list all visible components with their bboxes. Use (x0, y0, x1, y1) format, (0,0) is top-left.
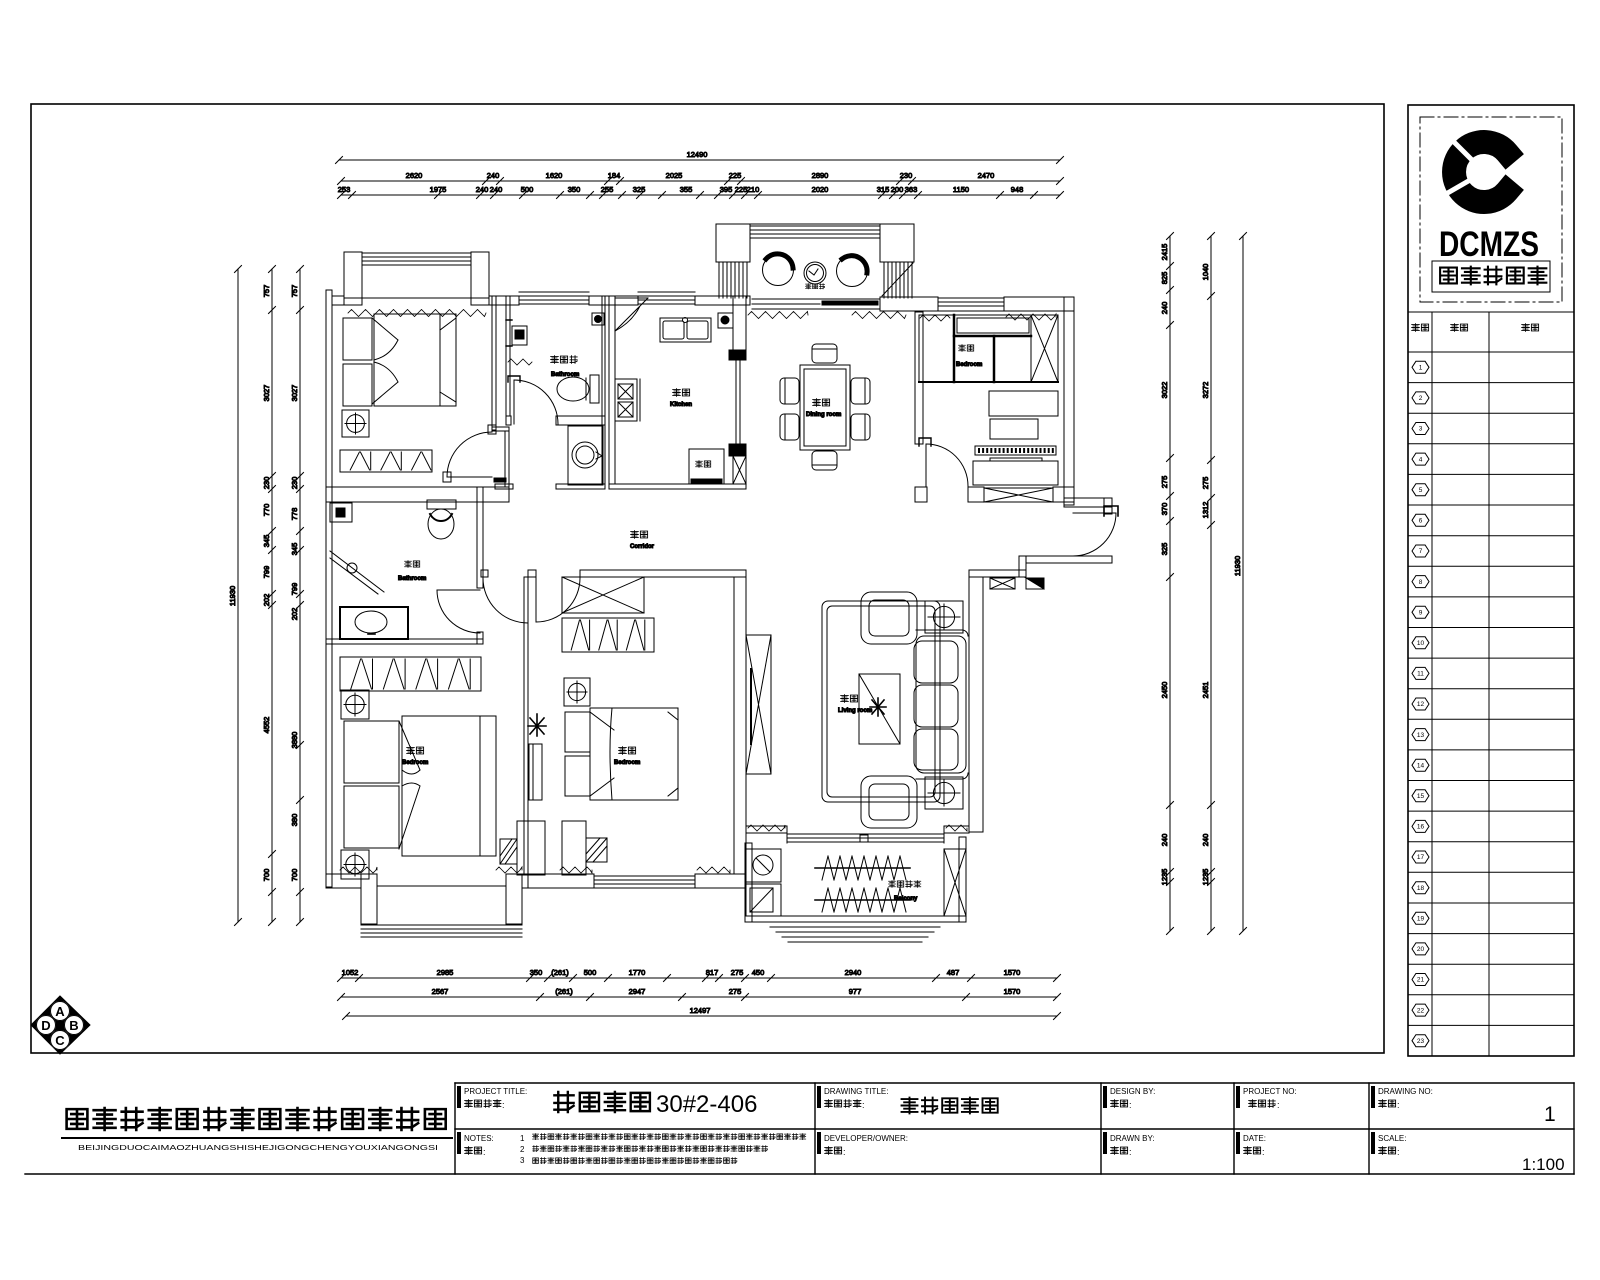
svg-text:6: 6 (1419, 518, 1423, 525)
svg-text:NOTES:: NOTES: (464, 1134, 494, 1143)
svg-text:Balcony: Balcony (894, 896, 918, 902)
svg-text:315: 315 (877, 185, 890, 194)
svg-text:12490: 12490 (687, 150, 708, 159)
svg-text:8: 8 (1419, 579, 1423, 586)
svg-text:3027: 3027 (262, 385, 271, 402)
svg-text:1570: 1570 (1004, 968, 1021, 977)
svg-text:2567: 2567 (432, 987, 449, 996)
svg-text:SCALE:: SCALE: (1378, 1134, 1406, 1143)
svg-text:500: 500 (584, 968, 597, 977)
svg-text:255: 255 (601, 185, 614, 194)
svg-text:240: 240 (476, 185, 489, 194)
svg-text:355: 355 (680, 185, 693, 194)
svg-text:DATE:: DATE: (1243, 1134, 1266, 1143)
svg-text:DRAWING TITLE:: DRAWING TITLE: (824, 1087, 888, 1096)
svg-text:240: 240 (1160, 834, 1169, 847)
svg-text:1052: 1052 (342, 968, 359, 977)
svg-text:2: 2 (1419, 395, 1423, 402)
svg-text:16: 16 (1417, 824, 1425, 831)
svg-text:345: 345 (290, 543, 299, 556)
svg-text:14: 14 (1417, 762, 1425, 769)
svg-text:17: 17 (1417, 854, 1425, 861)
svg-text:817: 817 (706, 968, 719, 977)
svg-text:225: 225 (735, 185, 748, 194)
svg-text::: : (1262, 1147, 1265, 1157)
svg-text:Bedroom: Bedroom (956, 362, 982, 368)
svg-text:977: 977 (849, 987, 862, 996)
svg-text:3272: 3272 (1201, 382, 1210, 399)
svg-text:350: 350 (530, 968, 543, 977)
svg-text:240: 240 (1201, 834, 1210, 847)
svg-text:22: 22 (1417, 1007, 1425, 1014)
svg-text:275: 275 (1201, 477, 1210, 490)
svg-text::: : (502, 1100, 505, 1110)
svg-text:1620: 1620 (546, 171, 563, 180)
svg-text:275: 275 (729, 987, 742, 996)
svg-text:Bedroom: Bedroom (402, 760, 428, 766)
svg-text:1:100: 1:100 (1522, 1155, 1565, 1174)
svg-text:PROJECT NO:: PROJECT NO: (1243, 1087, 1297, 1096)
svg-text:757: 757 (262, 285, 271, 298)
svg-text:Corridor: Corridor (630, 544, 655, 550)
svg-text:11930: 11930 (228, 586, 237, 606)
svg-text:1312: 1312 (1201, 502, 1210, 519)
svg-text:Dining room: Dining room (806, 412, 841, 418)
svg-text:DCMZS: DCMZS (1439, 225, 1539, 264)
svg-text:(261): (261) (555, 987, 573, 996)
svg-text:4: 4 (1419, 456, 1423, 463)
svg-text:2620: 2620 (406, 171, 423, 180)
svg-text:2451: 2451 (1201, 682, 1210, 699)
svg-text:13: 13 (1417, 732, 1425, 739)
svg-text:23: 23 (1417, 1038, 1425, 1045)
svg-text:778: 778 (290, 508, 299, 521)
svg-text:Bedroom: Bedroom (614, 760, 640, 766)
svg-text:325: 325 (1160, 543, 1169, 556)
svg-text:2450: 2450 (1160, 682, 1169, 699)
svg-text:B: B (69, 1018, 78, 1033)
svg-text:450: 450 (752, 968, 765, 977)
svg-text:770: 770 (262, 504, 271, 517)
svg-text:370: 370 (1160, 503, 1169, 516)
svg-text:253: 253 (338, 185, 351, 194)
svg-text:DRAWN BY:: DRAWN BY: (1110, 1134, 1155, 1143)
svg-text:363: 363 (905, 185, 918, 194)
svg-text:3: 3 (520, 1156, 525, 1165)
svg-text:PROJECT TITLE:: PROJECT TITLE: (464, 1087, 527, 1096)
svg-text:200: 200 (891, 185, 904, 194)
svg-text::: : (843, 1147, 846, 1157)
svg-text:Living room: Living room (838, 708, 872, 714)
svg-text:184: 184 (608, 171, 621, 180)
svg-text:240: 240 (487, 171, 500, 180)
svg-text:3: 3 (1419, 426, 1423, 433)
svg-text:19: 19 (1417, 916, 1425, 923)
svg-text:Kitchen: Kitchen (670, 402, 692, 408)
svg-text:C: C (55, 1033, 65, 1048)
svg-text:Bathroom: Bathroom (551, 372, 579, 378)
svg-text:2: 2 (520, 1145, 525, 1154)
svg-text:2415: 2415 (1160, 244, 1169, 261)
svg-text:350: 350 (568, 185, 581, 194)
svg-text:2947: 2947 (629, 987, 646, 996)
svg-text:275: 275 (1160, 476, 1169, 489)
svg-text:4552: 4552 (262, 717, 271, 734)
svg-text:BEIJINGDUOCAIMAOZHUANGSHISHEJI: BEIJINGDUOCAIMAOZHUANGSHISHEJIGONGCHENGY… (78, 1143, 438, 1152)
svg-text::: : (483, 1147, 486, 1157)
svg-text:A: A (55, 1004, 65, 1019)
svg-text:2025: 2025 (666, 171, 683, 180)
svg-text:202: 202 (290, 608, 299, 621)
svg-text:3880: 3880 (290, 732, 299, 749)
svg-text:2985: 2985 (437, 968, 454, 977)
svg-text::: : (1397, 1147, 1400, 1157)
svg-text:DEVELOPER/OWNER:: DEVELOPER/OWNER: (824, 1134, 908, 1143)
svg-text:948: 948 (1011, 185, 1024, 194)
svg-text::: : (862, 1100, 865, 1110)
svg-text:1770: 1770 (629, 968, 646, 977)
svg-text:1235: 1235 (1201, 869, 1210, 886)
svg-text:DESIGN BY:: DESIGN BY: (1110, 1087, 1155, 1096)
svg-text:230: 230 (262, 477, 271, 490)
svg-text:1: 1 (520, 1134, 525, 1143)
svg-text:1040: 1040 (1201, 264, 1210, 281)
svg-text:1975: 1975 (430, 185, 447, 194)
svg-text:202: 202 (262, 594, 271, 607)
svg-text:3022: 3022 (1160, 382, 1169, 399)
svg-text::: : (1129, 1147, 1132, 1157)
svg-text:7: 7 (1419, 548, 1423, 555)
svg-text:12: 12 (1417, 701, 1425, 708)
svg-text:20: 20 (1417, 946, 1425, 953)
svg-text:D: D (41, 1018, 50, 1033)
svg-text:230: 230 (900, 171, 913, 180)
svg-text:1150: 1150 (953, 185, 969, 194)
svg-text:1235: 1235 (1160, 869, 1169, 886)
svg-text:380: 380 (290, 814, 299, 827)
svg-text:225: 225 (729, 171, 742, 180)
svg-text:825: 825 (1160, 272, 1169, 285)
svg-text:700: 700 (262, 869, 271, 882)
svg-text:395: 395 (720, 185, 733, 194)
svg-text:21: 21 (1417, 977, 1425, 984)
svg-text:230: 230 (290, 477, 299, 490)
svg-text:700: 700 (290, 869, 299, 882)
svg-text:2890: 2890 (812, 171, 829, 180)
svg-text:11930: 11930 (1233, 556, 1242, 576)
svg-text:210: 210 (747, 185, 760, 194)
svg-text:12497: 12497 (690, 1006, 711, 1015)
svg-text::: : (1397, 1100, 1400, 1110)
svg-text:DRAWING NO:: DRAWING NO: (1378, 1087, 1433, 1096)
svg-text:3027: 3027 (290, 385, 299, 402)
svg-text:275: 275 (731, 968, 744, 977)
svg-text:757: 757 (290, 285, 299, 298)
svg-text:1570: 1570 (1004, 987, 1021, 996)
svg-text::: : (1129, 1100, 1132, 1110)
svg-text:345: 345 (262, 535, 271, 548)
svg-text:1: 1 (1544, 1103, 1556, 1126)
svg-text:799: 799 (262, 566, 271, 579)
svg-text:11: 11 (1417, 671, 1424, 678)
svg-text:(261): (261) (551, 968, 569, 977)
svg-text:325: 325 (633, 185, 646, 194)
svg-text:2470: 2470 (978, 171, 995, 180)
svg-text:240: 240 (1160, 302, 1169, 315)
svg-text:240: 240 (490, 185, 503, 194)
svg-text:487: 487 (947, 968, 960, 977)
svg-text:2940: 2940 (845, 968, 862, 977)
svg-text:2020: 2020 (812, 185, 829, 194)
svg-text:5: 5 (1419, 487, 1423, 494)
svg-text:10: 10 (1417, 640, 1425, 647)
svg-text:799: 799 (290, 583, 299, 596)
svg-text::: : (1277, 1100, 1280, 1110)
svg-text:9: 9 (1419, 609, 1423, 616)
svg-text:500: 500 (521, 185, 534, 194)
svg-text:30#2-406: 30#2-406 (656, 1091, 757, 1118)
svg-text:1: 1 (1419, 365, 1423, 372)
svg-text:15: 15 (1417, 793, 1425, 800)
svg-text:18: 18 (1417, 885, 1425, 892)
svg-text:Bathroom: Bathroom (398, 576, 426, 582)
